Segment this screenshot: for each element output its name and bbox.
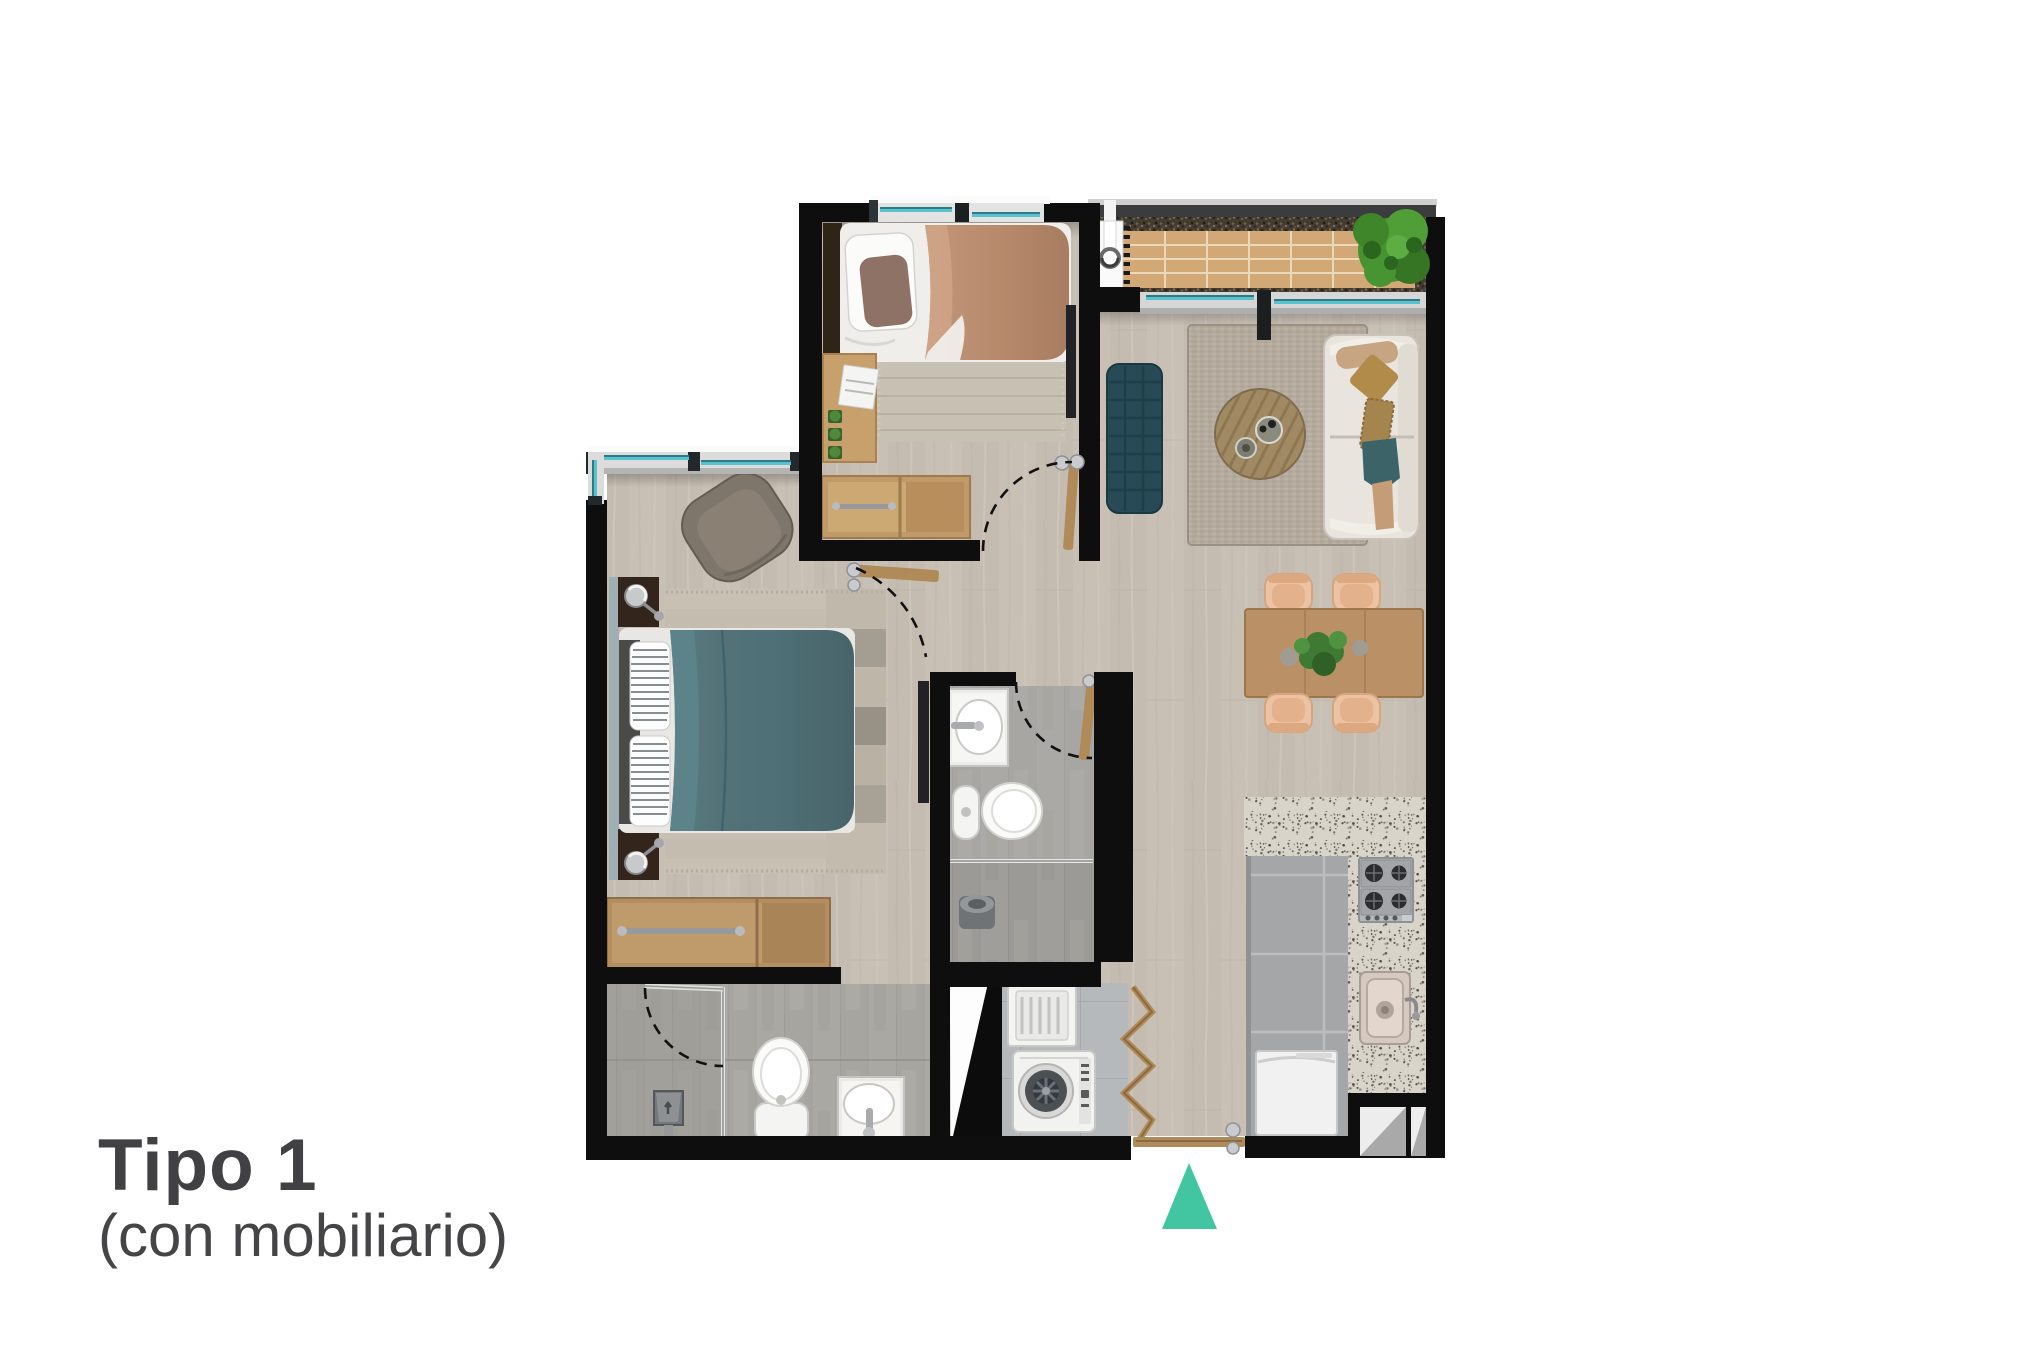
svg-text:Tipo 1: Tipo 1 [98, 1125, 318, 1206]
svg-text:(con mobiliario): (con mobiliario) [98, 1202, 508, 1269]
